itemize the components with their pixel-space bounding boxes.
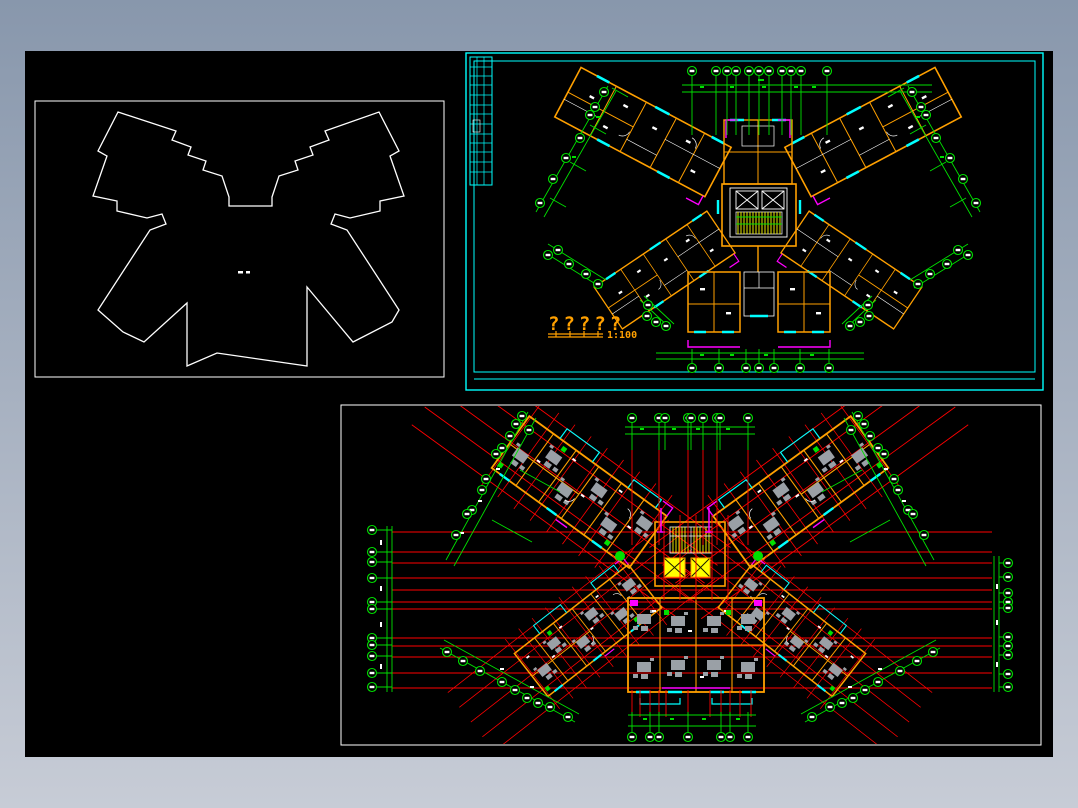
drawing-scale: 1:100	[607, 330, 637, 341]
model-space-canvas[interactable]	[25, 51, 1053, 757]
drawing-title-block: ????? 1:100	[548, 313, 637, 341]
stair-icon	[670, 527, 712, 553]
cad-viewport: ????? 1:100	[0, 0, 1078, 808]
